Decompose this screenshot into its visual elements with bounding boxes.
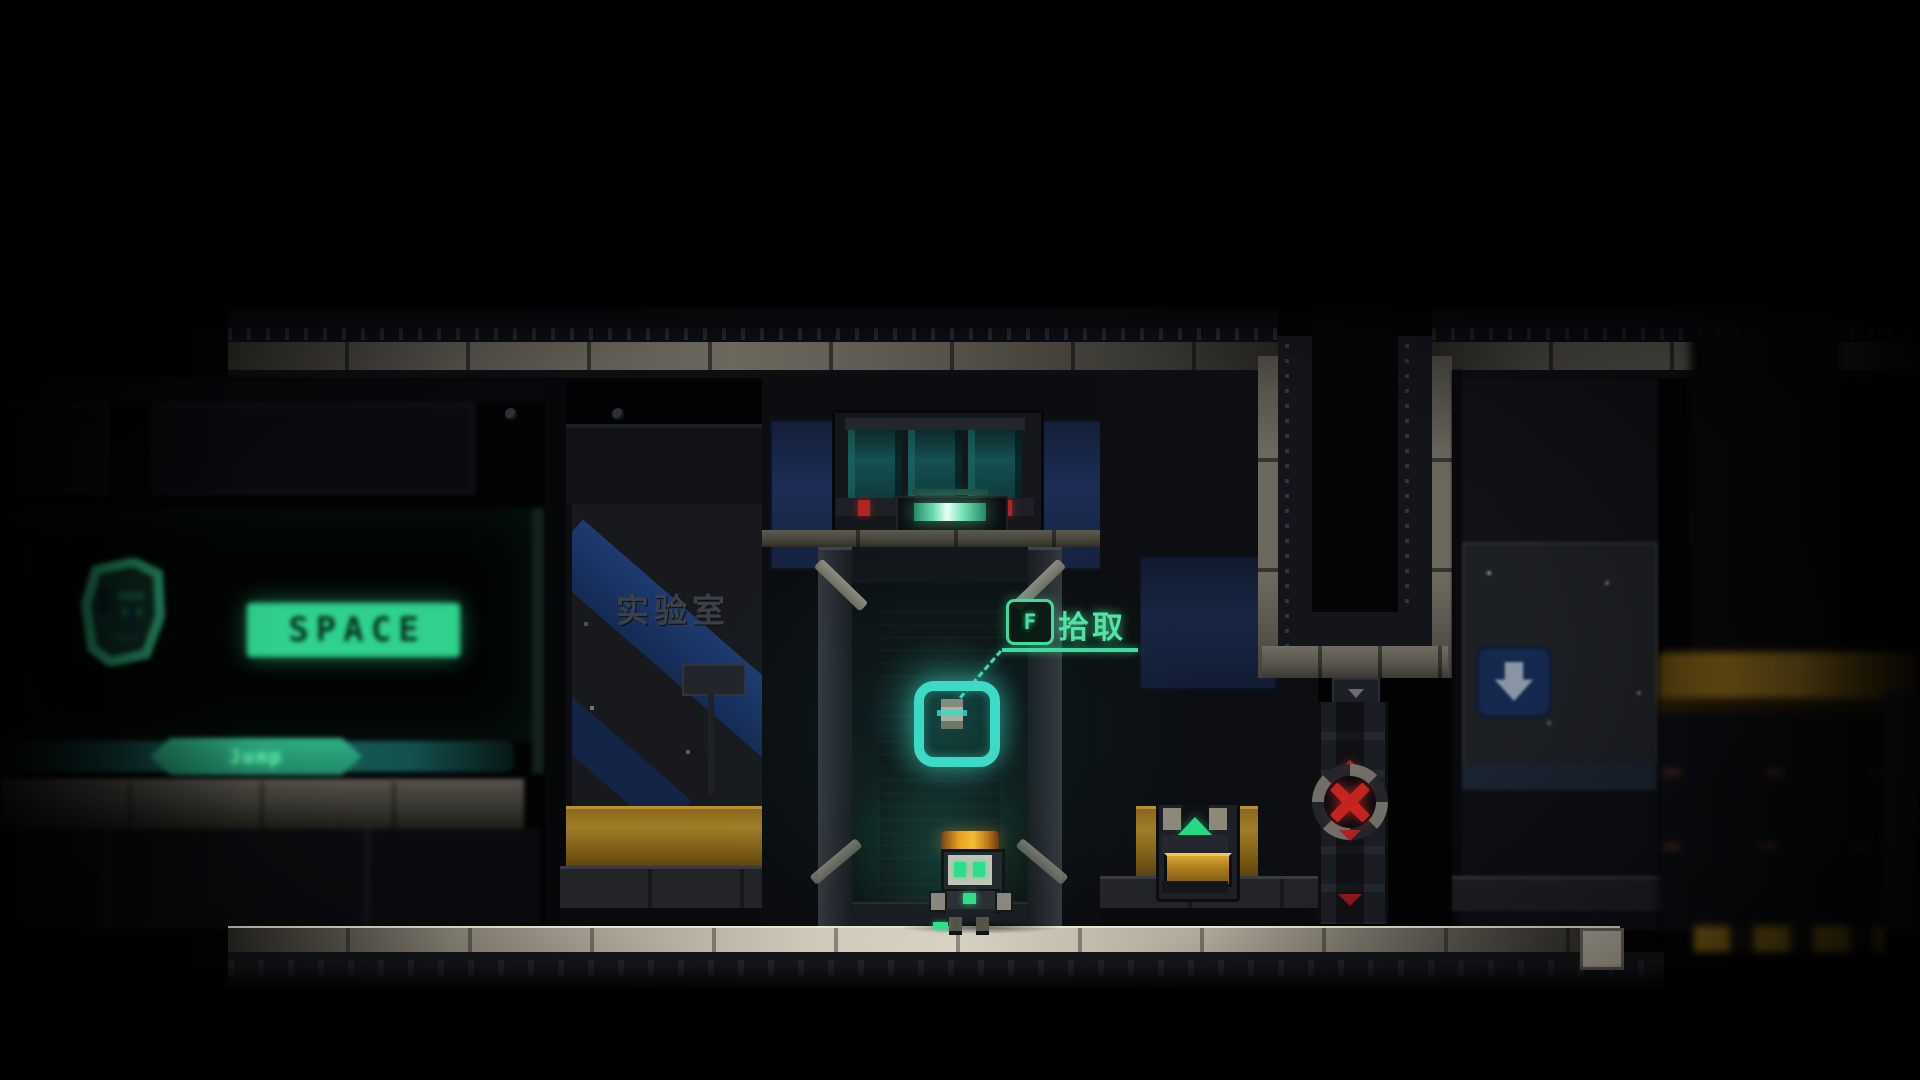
vignette-radial [0, 0, 1920, 1080]
game-viewport: SPACE Jump 实验室 [0, 0, 1920, 1080]
